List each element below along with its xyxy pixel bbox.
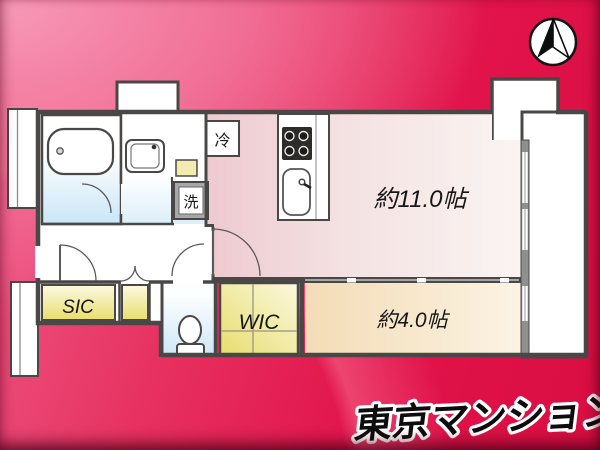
floor-plan-page: 約11.0帖 約4.0帖 SIC WIC 冷 洗 東京マンション xyxy=(0,0,600,450)
hall-closet xyxy=(122,285,148,320)
top-left-protrusion xyxy=(117,82,178,113)
room-bathroom xyxy=(42,115,121,224)
label-washer: 洗 xyxy=(183,194,198,211)
brand-logo: 東京マンション xyxy=(352,390,600,447)
toilet-fixture xyxy=(179,316,201,344)
washroom-sink xyxy=(126,140,164,172)
label-wic: WIC xyxy=(239,311,281,334)
left-service-strip-lower xyxy=(11,282,38,376)
kitchen-counter xyxy=(278,114,329,220)
label-sic: SIC xyxy=(62,297,94,318)
left-service-strip-upper xyxy=(8,109,37,208)
ldk-bedroom-divider-wall xyxy=(213,277,521,283)
room-ldk xyxy=(205,112,522,277)
label-refrigerator: 冷 xyxy=(214,132,230,150)
kitchen-sink xyxy=(283,169,311,215)
label-bedroom-size: 約4.0帖 xyxy=(376,309,450,332)
stove-icon xyxy=(282,127,312,160)
floor-plan-drawing: 約11.0帖 約4.0帖 SIC WIC 冷 洗 東京マンション xyxy=(0,0,600,450)
window-wall xyxy=(521,140,529,357)
sink-faucet xyxy=(152,145,157,150)
balcony xyxy=(522,112,586,357)
washroom-cabinet xyxy=(176,160,197,176)
window-segments xyxy=(522,152,527,321)
room-toilet xyxy=(163,283,214,356)
entrance-door-opening xyxy=(35,246,41,278)
bathtub-drain xyxy=(57,148,63,154)
label-ldk-size: 約11.0帖 xyxy=(374,186,470,213)
compass-icon xyxy=(530,18,576,65)
